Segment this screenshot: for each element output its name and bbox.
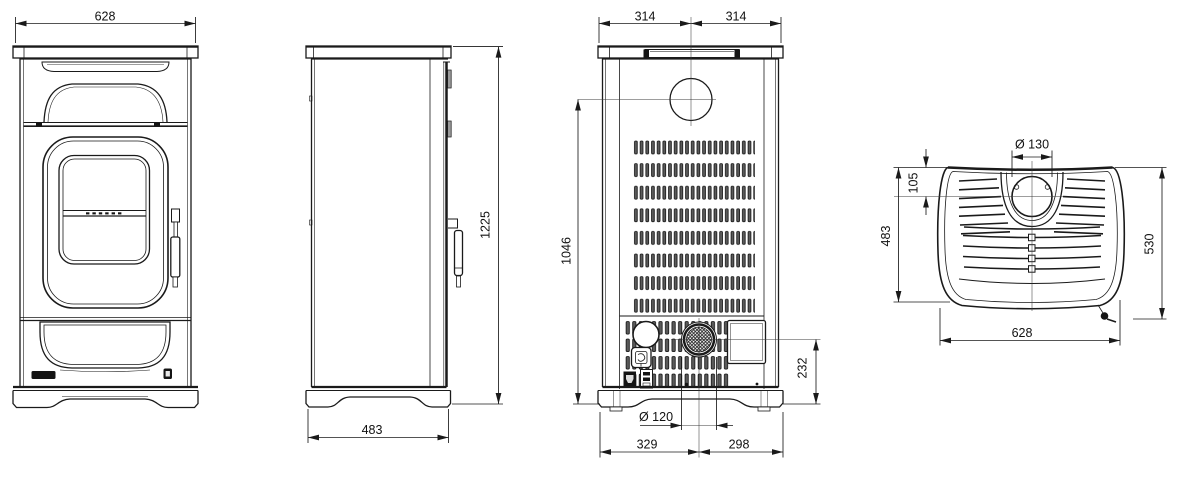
side-hinge-lower xyxy=(448,121,452,137)
dim-rear-width-right-label: 314 xyxy=(726,10,747,24)
front-drawer xyxy=(40,322,170,368)
front-view: 628 xyxy=(13,10,198,408)
dim-top-width-label: 628 xyxy=(1012,326,1033,340)
dim-rear-outlet-diameter: Ø 120 xyxy=(639,410,733,426)
dim-rear-outlet-height-label: 232 xyxy=(796,358,810,379)
rear-air-inlet xyxy=(633,322,659,348)
dim-rear-offsets: 329 298 xyxy=(600,412,783,458)
rear-power-inlet xyxy=(624,372,637,387)
front-hopper-arch xyxy=(44,84,167,122)
stove-dimension-drawing: 628 1225 xyxy=(0,0,1200,479)
dim-side-height: 1225 xyxy=(452,47,503,404)
dim-top-body-depth-label: 483 xyxy=(879,226,893,247)
front-lid-recess xyxy=(42,62,169,72)
front-door-handle xyxy=(171,209,180,287)
dim-side-depth-label: 483 xyxy=(362,423,383,437)
dim-side-height-label: 1225 xyxy=(479,211,493,239)
top-view: Ø 130 105 483 530 628 xyxy=(879,138,1167,346)
front-plinth xyxy=(13,391,198,408)
front-rating-badge xyxy=(164,369,173,380)
dim-top-overall-depth: 530 xyxy=(1115,168,1167,320)
dim-top-overall-depth-label: 530 xyxy=(1143,234,1157,255)
dim-rear-flue-height-label: 1046 xyxy=(560,237,574,265)
rear-view: 314 314 1046 232 Ø 120 329 xyxy=(560,10,821,458)
dim-rear-width: 314 314 xyxy=(599,10,781,44)
rear-lid xyxy=(644,50,741,59)
dim-rear-outlet-diameter-label: Ø 120 xyxy=(639,410,673,424)
dim-rear-width-left-label: 314 xyxy=(635,10,656,24)
dim-rear-offset-right-label: 298 xyxy=(729,438,750,452)
rear-top-plate xyxy=(598,46,783,58)
technical-drawing-canvas: 628 1225 xyxy=(0,0,1200,479)
dim-front-width: 628 xyxy=(16,10,196,44)
rear-rating-plate xyxy=(728,321,766,364)
dim-top-flue-diameter-label: Ø 130 xyxy=(1015,138,1049,152)
side-handle xyxy=(448,219,463,287)
dim-front-width-label: 628 xyxy=(95,10,116,24)
front-door-window xyxy=(59,156,150,265)
rear-vent-grid-upper xyxy=(633,141,755,315)
rear-terminal-block xyxy=(641,370,653,389)
side-plinth xyxy=(306,391,451,408)
top-handle-knob xyxy=(1098,305,1116,322)
dim-top-flue-offset-label: 105 xyxy=(907,173,921,194)
front-brand-label xyxy=(32,371,56,379)
dim-rear-outlet-height: 232 xyxy=(783,340,821,405)
rear-plinth xyxy=(598,391,783,408)
rear-warning-icon xyxy=(632,348,652,368)
side-hinge-upper xyxy=(448,70,452,88)
side-view: 1225 483 xyxy=(306,46,503,443)
side-top-plate xyxy=(306,46,451,58)
dim-rear-flue-height: 1046 xyxy=(560,100,601,405)
front-top-plate xyxy=(13,46,198,58)
dim-rear-offset-left-label: 329 xyxy=(637,438,658,452)
dim-side-depth: 483 xyxy=(308,409,449,443)
